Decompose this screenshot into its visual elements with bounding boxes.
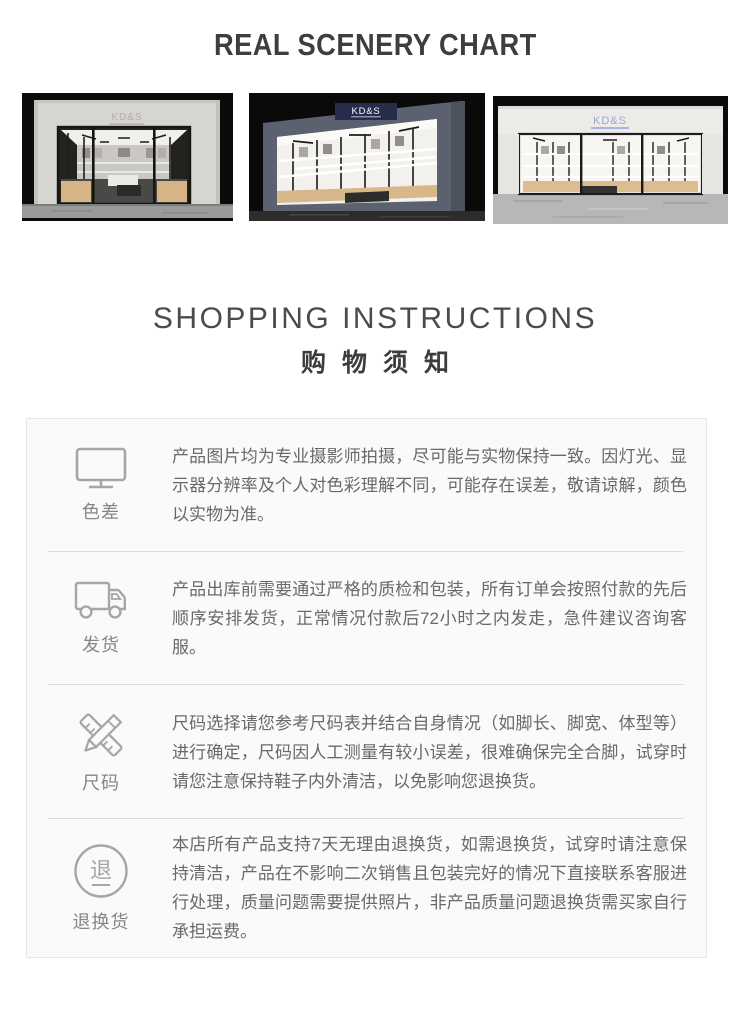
- notice-icon-column: 尺码: [51, 710, 151, 795]
- storefront-wide-illustration: KD&S: [493, 96, 728, 224]
- store-photo-angled-view: KD&S: [249, 93, 485, 221]
- store-sign-text: KD&S: [351, 106, 380, 117]
- page-title-text: REAL SCENERY CHART: [214, 27, 537, 63]
- notice-label: 发货: [82, 631, 120, 657]
- notice-label: 色差: [82, 498, 120, 524]
- notice-icon-column: 发货: [51, 580, 151, 657]
- notice-text: 产品出库前需要通过严格的质检和包装，所有订单会按照付款的先后顺序安排发货，正常情…: [172, 575, 687, 662]
- notice-text: 产品图片均为专业摄影师拍摄，尽可能与实物保持一致。因灯光、显示器分辨率及个人对色…: [172, 442, 687, 529]
- notice-row-color-difference: 色差 产品图片均为专业摄影师拍摄，尽可能与实物保持一致。因灯光、显示器分辨率及个…: [27, 419, 706, 552]
- page-title: REAL SCENERY CHART: [0, 27, 750, 63]
- shopping-instructions-title-zh: 购物须知: [0, 343, 750, 379]
- notice-row-sizing: 尺码 尺码选择请您参考尺码表并结合自身情况（如脚长、脚宽、体型等）进行确定，尺码…: [27, 685, 706, 819]
- pencil-ruler-icon: [76, 710, 126, 760]
- storefront-angled-illustration: KD&S: [249, 93, 485, 221]
- return-circle-icon: 退: [73, 843, 129, 899]
- shopping-instructions-title-en: SHOPPING INSTRUCTIONS: [0, 302, 750, 336]
- notice-text-column: 产品出库前需要通过严格的质检和包装，所有订单会按照付款的先后顺序安排发货，正常情…: [172, 575, 687, 662]
- truck-icon: [74, 580, 128, 622]
- store-sign-text: KD&S: [593, 115, 627, 127]
- monitor-icon: [75, 447, 127, 489]
- store-photo-front-view: KD&S: [22, 93, 233, 221]
- notice-text: 本店所有产品支持7天无理由退换货，如需退换货，试穿时请注意保持清洁，产品在不影响…: [172, 830, 687, 946]
- notice-label: 尺码: [82, 769, 120, 795]
- notice-label: 退换货: [73, 908, 130, 934]
- notice-text-column: 尺码选择请您参考尺码表并结合自身情况（如脚长、脚宽、体型等）进行确定，尺码因人工…: [172, 709, 687, 796]
- shopping-notice-box: 色差 产品图片均为专业摄影师拍摄，尽可能与实物保持一致。因灯光、显示器分辨率及个…: [26, 418, 707, 958]
- return-icon-character: 退: [90, 857, 112, 882]
- notice-icon-column: 色差: [51, 447, 151, 524]
- notice-text: 尺码选择请您参考尺码表并结合自身情况（如脚长、脚宽、体型等）进行确定，尺码因人工…: [172, 709, 687, 796]
- store-photo-wide-view: KD&S: [493, 96, 728, 224]
- notice-row-returns: 退 退换货 本店所有产品支持7天无理由退换货，如需退换货，试穿时请注意保持清洁，…: [27, 819, 706, 957]
- notice-text-column: 产品图片均为专业摄影师拍摄，尽可能与实物保持一致。因灯光、显示器分辨率及个人对色…: [172, 442, 687, 529]
- storefront-front-illustration: KD&S: [22, 93, 233, 221]
- notice-icon-column: 退 退换货: [51, 843, 151, 934]
- notice-row-shipping: 发货 产品出库前需要通过严格的质检和包装，所有订单会按照付款的先后顺序安排发货，…: [27, 552, 706, 685]
- store-sign-text: KD&S: [111, 112, 142, 123]
- notice-text-column: 本店所有产品支持7天无理由退换货，如需退换货，试穿时请注意保持清洁，产品在不影响…: [172, 830, 687, 946]
